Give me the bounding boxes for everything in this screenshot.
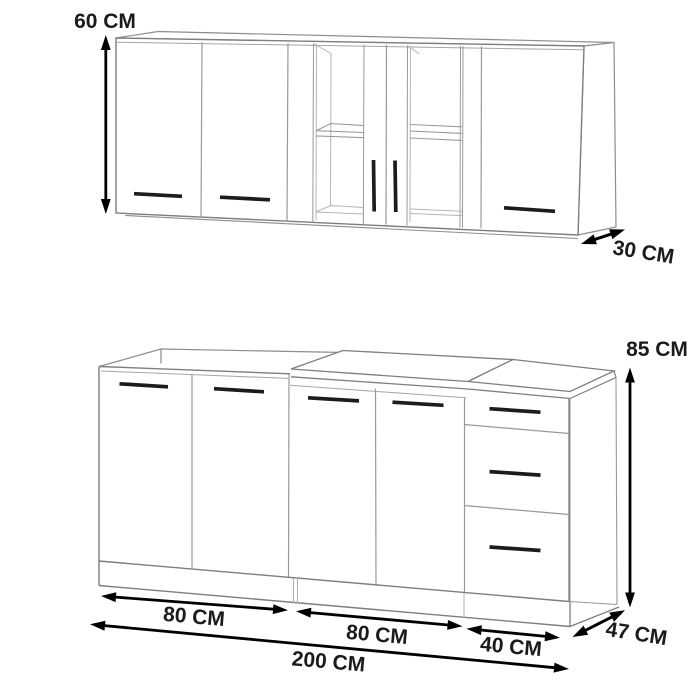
svg-text:85 CM: 85 CM: [626, 338, 688, 361]
svg-text:60 CM: 60 CM: [74, 10, 136, 33]
